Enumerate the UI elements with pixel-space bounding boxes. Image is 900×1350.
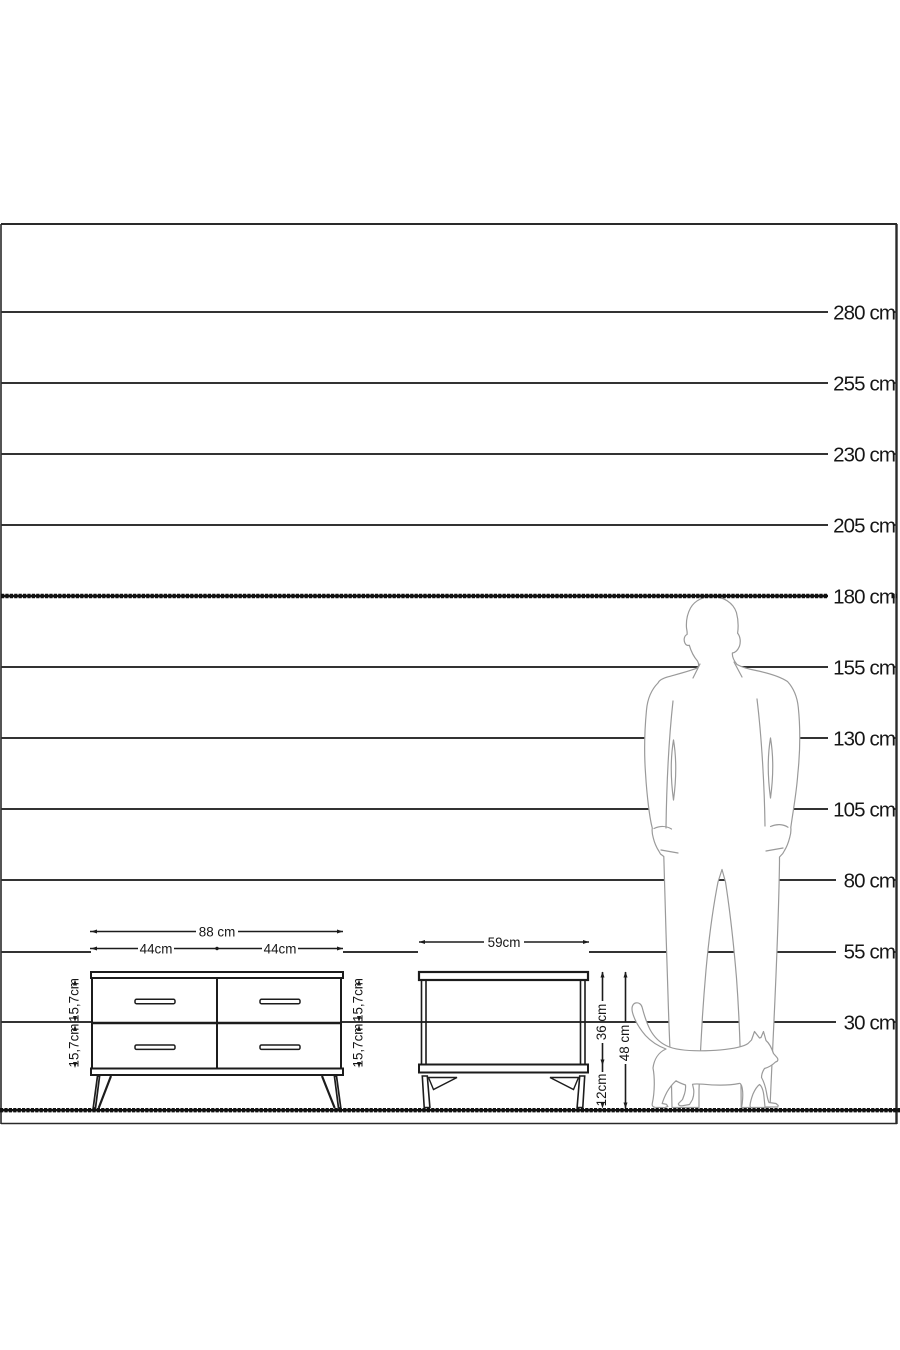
svg-text:230 cm: 230 cm: [833, 443, 895, 466]
svg-text:280 cm: 280 cm: [833, 301, 895, 324]
svg-text:55 cm: 55 cm: [844, 940, 895, 963]
svg-text:105 cm: 105 cm: [833, 798, 895, 821]
svg-text:15,7cm: 15,7cm: [351, 978, 366, 1022]
svg-text:80 cm: 80 cm: [844, 869, 895, 892]
svg-text:15,7cm: 15,7cm: [351, 1024, 366, 1068]
svg-text:59cm: 59cm: [488, 935, 521, 950]
svg-text:155 cm: 155 cm: [833, 656, 895, 679]
svg-text:48 cm: 48 cm: [617, 1025, 632, 1061]
svg-text:36 cm: 36 cm: [594, 1004, 609, 1040]
svg-text:15,7cm: 15,7cm: [67, 1024, 82, 1068]
svg-text:130 cm: 130 cm: [833, 727, 895, 750]
svg-text:30 cm: 30 cm: [844, 1011, 895, 1034]
svg-text:15,7cm: 15,7cm: [67, 978, 82, 1022]
svg-text:255 cm: 255 cm: [833, 372, 895, 395]
svg-text:44cm: 44cm: [264, 942, 297, 957]
svg-text:88 cm: 88 cm: [199, 925, 235, 940]
svg-text:12cm: 12cm: [594, 1074, 609, 1107]
svg-text:44cm: 44cm: [140, 942, 173, 957]
svg-text:205 cm: 205 cm: [833, 514, 895, 537]
svg-text:180 cm: 180 cm: [833, 585, 895, 608]
